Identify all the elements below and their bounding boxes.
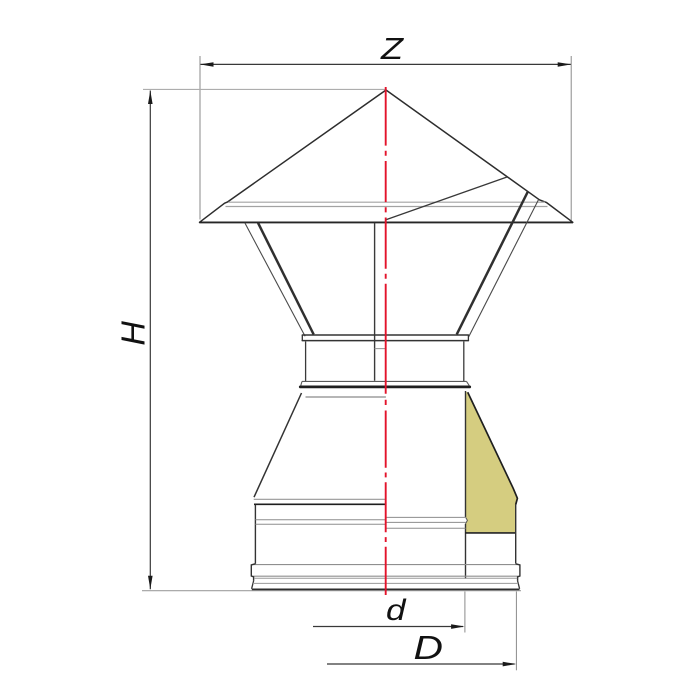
svg-text:D: D <box>414 629 444 666</box>
svg-text:H: H <box>115 321 152 346</box>
svg-text:d: d <box>386 594 407 627</box>
svg-text:Z: Z <box>380 32 405 66</box>
